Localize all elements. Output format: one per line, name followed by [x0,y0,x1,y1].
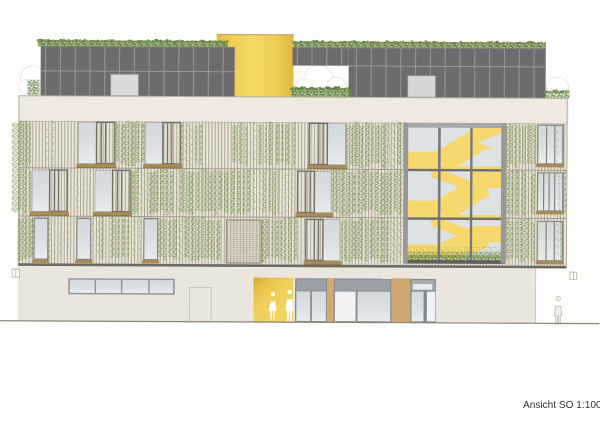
svg-text:Ansicht SO 1:100: Ansicht SO 1:100 [523,400,600,411]
